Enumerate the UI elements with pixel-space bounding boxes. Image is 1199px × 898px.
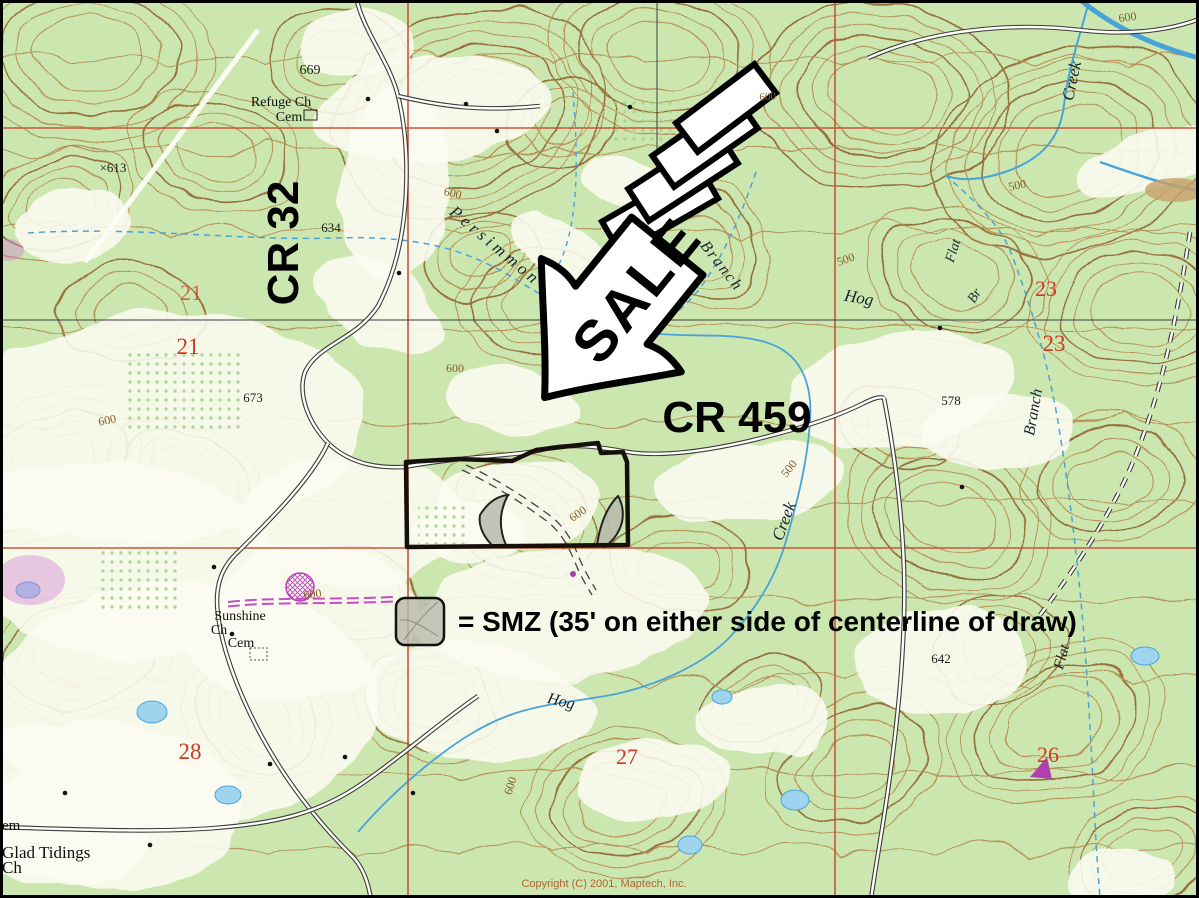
gravel-pit-symbol <box>286 573 314 601</box>
topo-map-image: SALE 669Refuge ChCem×613634CR 3221216736… <box>0 0 1199 898</box>
smz-legend-swatch <box>396 598 444 645</box>
smz-legend-text: = SMZ (35' on either side of centerline … <box>458 606 1077 637</box>
purple-dot <box>570 571 576 577</box>
topo-map-canvas: SALE 669Refuge ChCem×613634CR 3221216736… <box>0 0 1199 898</box>
